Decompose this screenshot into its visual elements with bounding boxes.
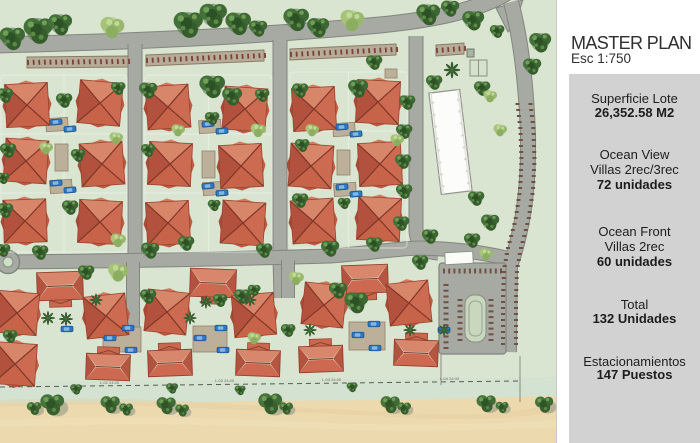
svg-text:L-02 24.00: L-02 24.00 bbox=[215, 378, 235, 383]
svg-text:L-01 24.00: L-01 24.00 bbox=[100, 380, 120, 385]
svg-text:L-04 24.00: L-04 24.00 bbox=[440, 376, 460, 381]
svg-text:L-03 24.00: L-03 24.00 bbox=[322, 377, 342, 382]
